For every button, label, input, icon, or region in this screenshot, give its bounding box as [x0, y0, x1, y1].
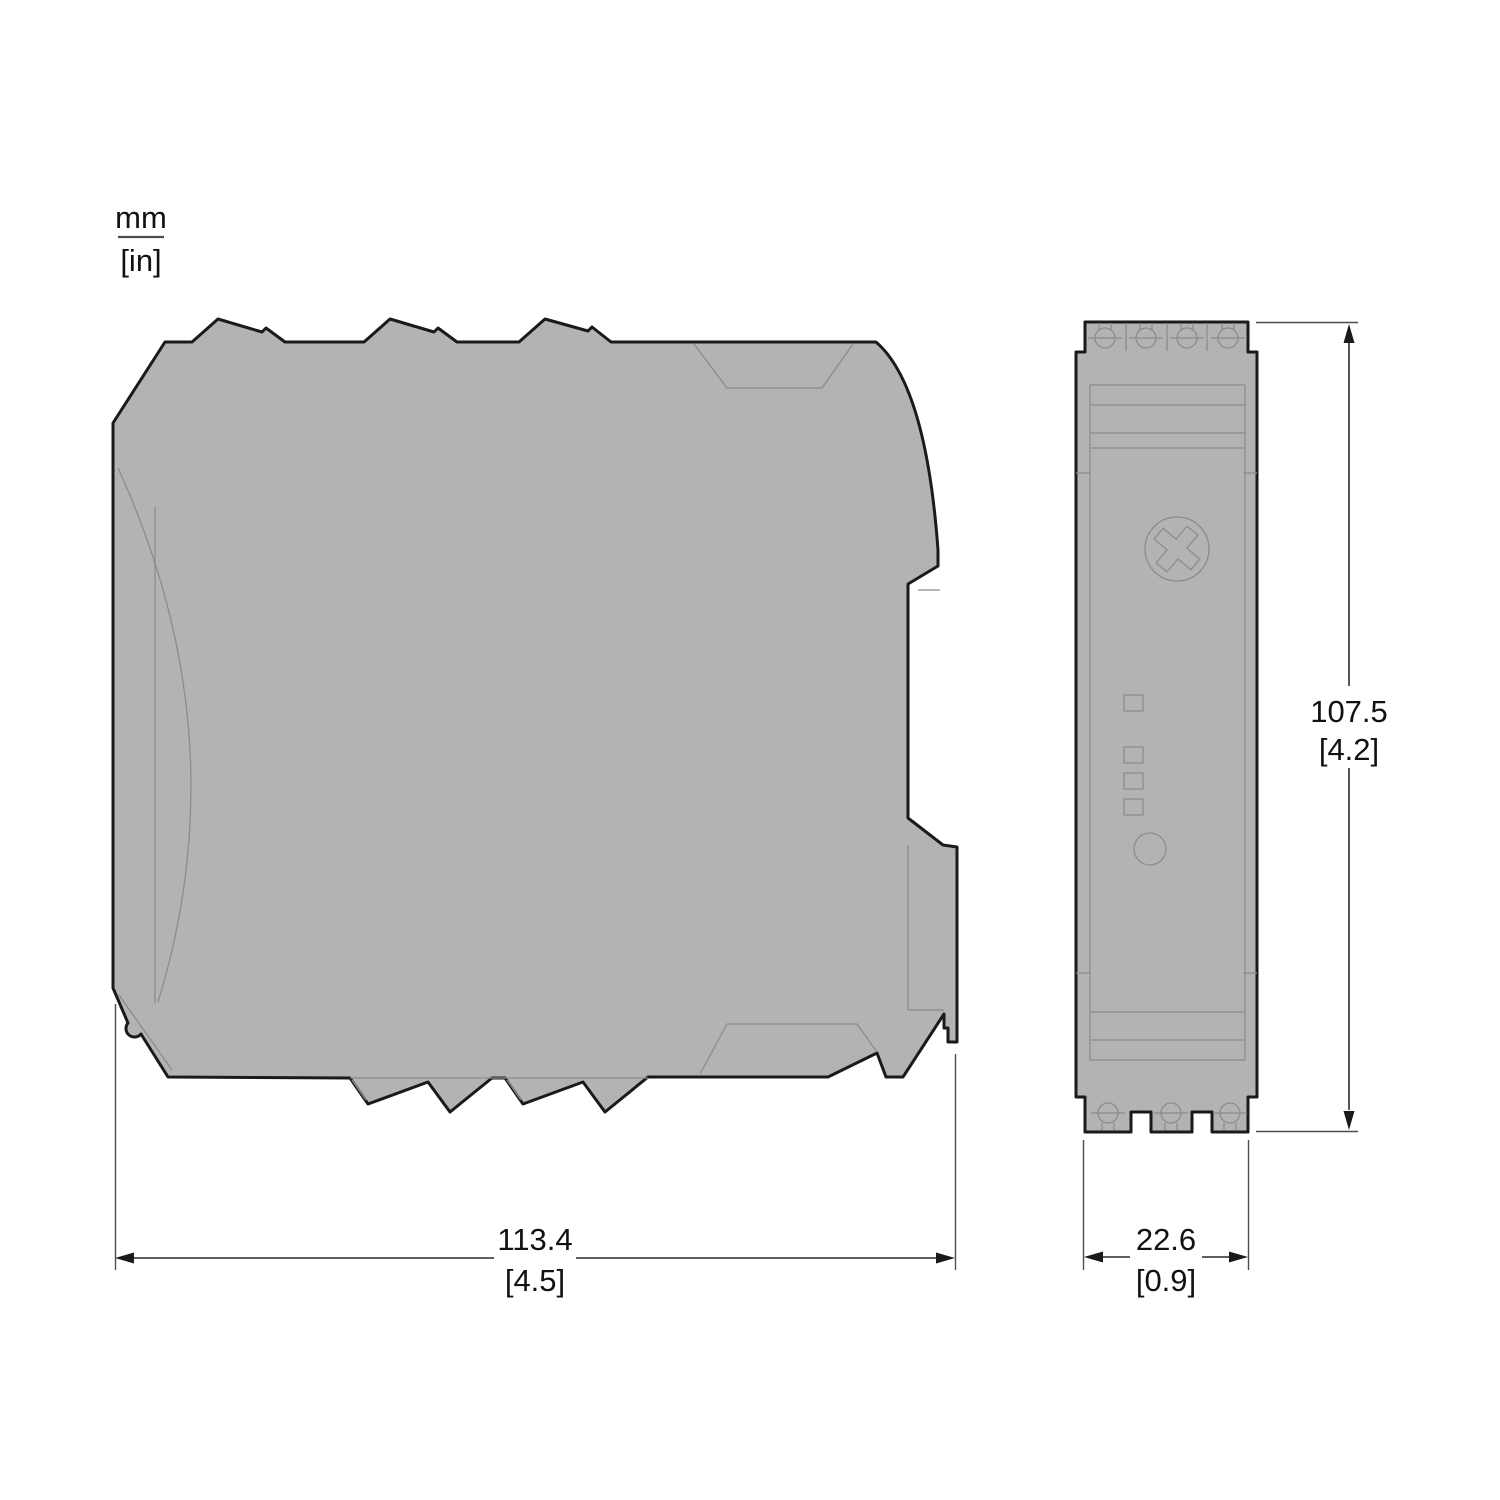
unit-legend: mm [in]: [115, 200, 167, 278]
width-value-mm: 113.4: [497, 1222, 572, 1257]
side-view-body: [113, 319, 957, 1112]
unit-secondary-label: [in]: [120, 243, 161, 278]
arrowhead-right: [936, 1253, 955, 1264]
height-value-in: [4.2]: [1319, 732, 1379, 767]
arrowhead-top: [1344, 324, 1355, 343]
depth-dimension: 22.6 [0.9]: [1084, 1140, 1249, 1298]
side-view: [113, 319, 957, 1112]
arrowhead-bottom: [1344, 1111, 1355, 1130]
depth-value-in: [0.9]: [1136, 1263, 1196, 1298]
dimension-drawing-canvas: mm [in]: [0, 0, 1500, 1500]
width-value-in: [4.5]: [505, 1263, 565, 1298]
front-view-body: [1076, 322, 1257, 1132]
dimension-drawing-page: mm [in]: [0, 0, 1500, 1500]
depth-value-mm: 22.6: [1136, 1222, 1196, 1257]
arrowhead-right: [1229, 1252, 1248, 1263]
height-value-mm: 107.5: [1310, 694, 1388, 729]
arrowhead-left: [115, 1253, 134, 1264]
unit-primary-label: mm: [115, 200, 167, 235]
front-view: [1076, 322, 1257, 1132]
arrowhead-left: [1084, 1252, 1103, 1263]
height-dimension: 107.5 [4.2]: [1256, 323, 1388, 1132]
